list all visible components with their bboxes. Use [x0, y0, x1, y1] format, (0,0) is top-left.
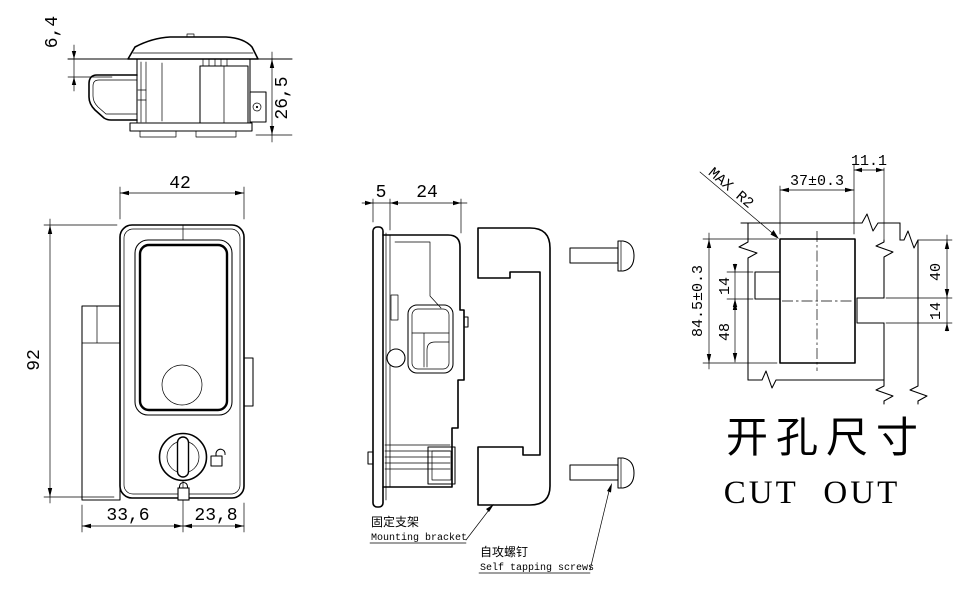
bracket-label-zh: 固定支架 — [371, 514, 419, 529]
dim-front-width: 42 — [169, 174, 191, 194]
dim-left-notch: 14 — [717, 277, 734, 295]
cutout-title-en: CUT OUT — [724, 475, 900, 511]
dim-cutout-width: 37±0.3 — [790, 173, 844, 190]
front-view: 42 92 33,6 23,8 — [25, 174, 253, 532]
dim-cap-height: 6,4 — [43, 16, 63, 48]
latch-technical-drawing: 6,4 26,5 — [0, 0, 969, 593]
drawing-sheet: 6,4 26,5 — [0, 0, 969, 593]
self-tapping-screw-bottom — [570, 458, 634, 488]
front-view-linework — [82, 225, 253, 532]
assembly-callouts: 固定支架 Mounting bracket 自攻螺钉 Self tapping … — [370, 483, 612, 574]
unlock-icon — [211, 449, 225, 466]
side-view: 6,4 26,5 — [43, 16, 293, 142]
cutout-aperture — [755, 231, 884, 371]
dim-body-height: 26,5 — [273, 76, 293, 119]
self-tapping-screw-top — [570, 241, 634, 271]
lock-marker-icon — [178, 483, 189, 501]
dim-right-offset: 11.1 — [851, 153, 887, 170]
max-radius-note: MAX R2 — [704, 165, 756, 213]
dim-below-notch: 48 — [717, 323, 734, 341]
screws-label-en: Self tapping screws — [480, 562, 594, 574]
cutout-dimensions: 37±0.3 11.1 84.5±0.3 14 48 — [690, 153, 952, 369]
side-view-linework — [68, 34, 292, 137]
dim-key-to-edge: 23,8 — [194, 506, 237, 526]
latch-side-profile — [368, 227, 468, 507]
dim-left-to-key: 33,6 — [106, 506, 149, 526]
cutout-titles: 开孔尺寸 CUT OUT — [724, 416, 926, 511]
assembly-dimensions: 5 24 — [362, 183, 467, 233]
cutout-title-zh: 开孔尺寸 — [726, 416, 926, 462]
dim-cutout-height: 84.5±0.3 — [690, 265, 707, 337]
dim-right-top: 40 — [928, 263, 945, 281]
dim-front-height: 92 — [25, 349, 45, 371]
screws-label-zh: 自攻螺钉 — [480, 545, 528, 559]
dim-flange-thickness: 5 — [376, 183, 387, 203]
dim-body-depth: 24 — [416, 183, 438, 203]
assembly-view: 5 24 固定支架 Mounting bracket 自攻螺钉 Self tap… — [362, 183, 634, 574]
bracket-label-en: Mounting bracket — [371, 532, 467, 544]
dim-right-notch: 14 — [928, 302, 945, 320]
panel-outline — [739, 168, 952, 404]
mounting-bracket — [478, 228, 550, 505]
cutout-view: 37±0.3 11.1 84.5±0.3 14 48 — [690, 153, 952, 511]
